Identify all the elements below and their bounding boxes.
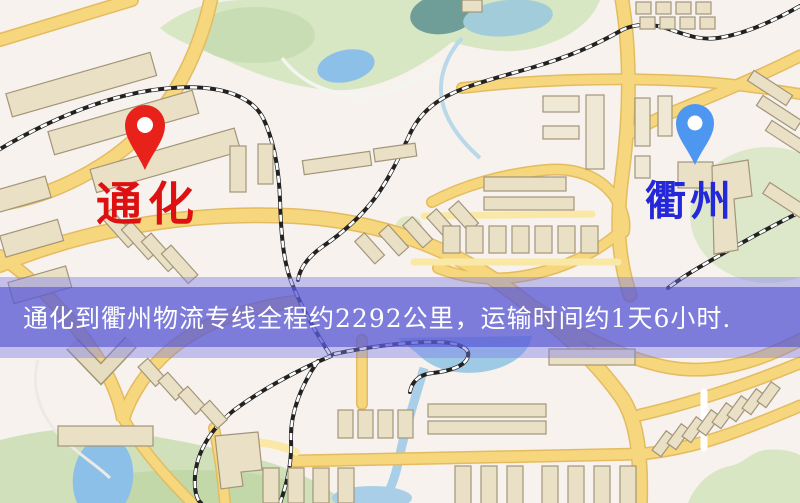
origin-pin-body [125, 105, 165, 170]
origin-pin-hole [137, 117, 153, 133]
map-screenshot: 通化 衢州 通化到衢州物流专线全程约2292公里，运输时间约1天6小时. [0, 0, 800, 503]
destination-pin-body [676, 104, 714, 165]
info-banner: 通化到衢州物流专线全程约2292公里，运输时间约1天6小时. [0, 287, 800, 347]
destination-city-label: 衢州 [645, 181, 735, 222]
destination-pin-hole [688, 116, 703, 131]
origin-pin-icon [121, 104, 169, 172]
destination-pin-icon [672, 103, 718, 167]
origin-city-label: 通化 [96, 181, 200, 227]
banner-text: 通化到衢州物流专线全程约2292公里，运输时间约1天6小时. [0, 299, 731, 335]
map-graphic [0, 0, 800, 503]
